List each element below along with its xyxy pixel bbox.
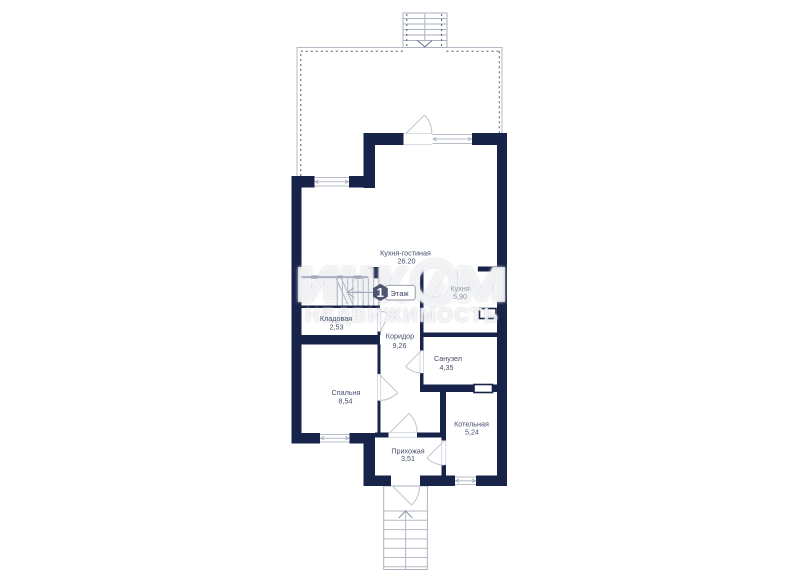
svg-text:9,26: 9,26 [393,341,407,350]
svg-text:26.20: 26.20 [398,257,416,266]
svg-text:Коридор: Коридор [386,332,414,341]
svg-text:5,90: 5,90 [453,292,467,301]
svg-text:8,54: 8,54 [339,397,353,406]
svg-text:5,24: 5,24 [465,428,479,437]
svg-text:Этаж: Этаж [390,289,409,298]
svg-text:2,53: 2,53 [330,323,344,332]
svg-text:3,51: 3,51 [401,454,415,463]
svg-text:4,35: 4,35 [440,363,454,372]
svg-text:Санузел: Санузел [434,354,462,363]
svg-text:1: 1 [377,285,384,300]
